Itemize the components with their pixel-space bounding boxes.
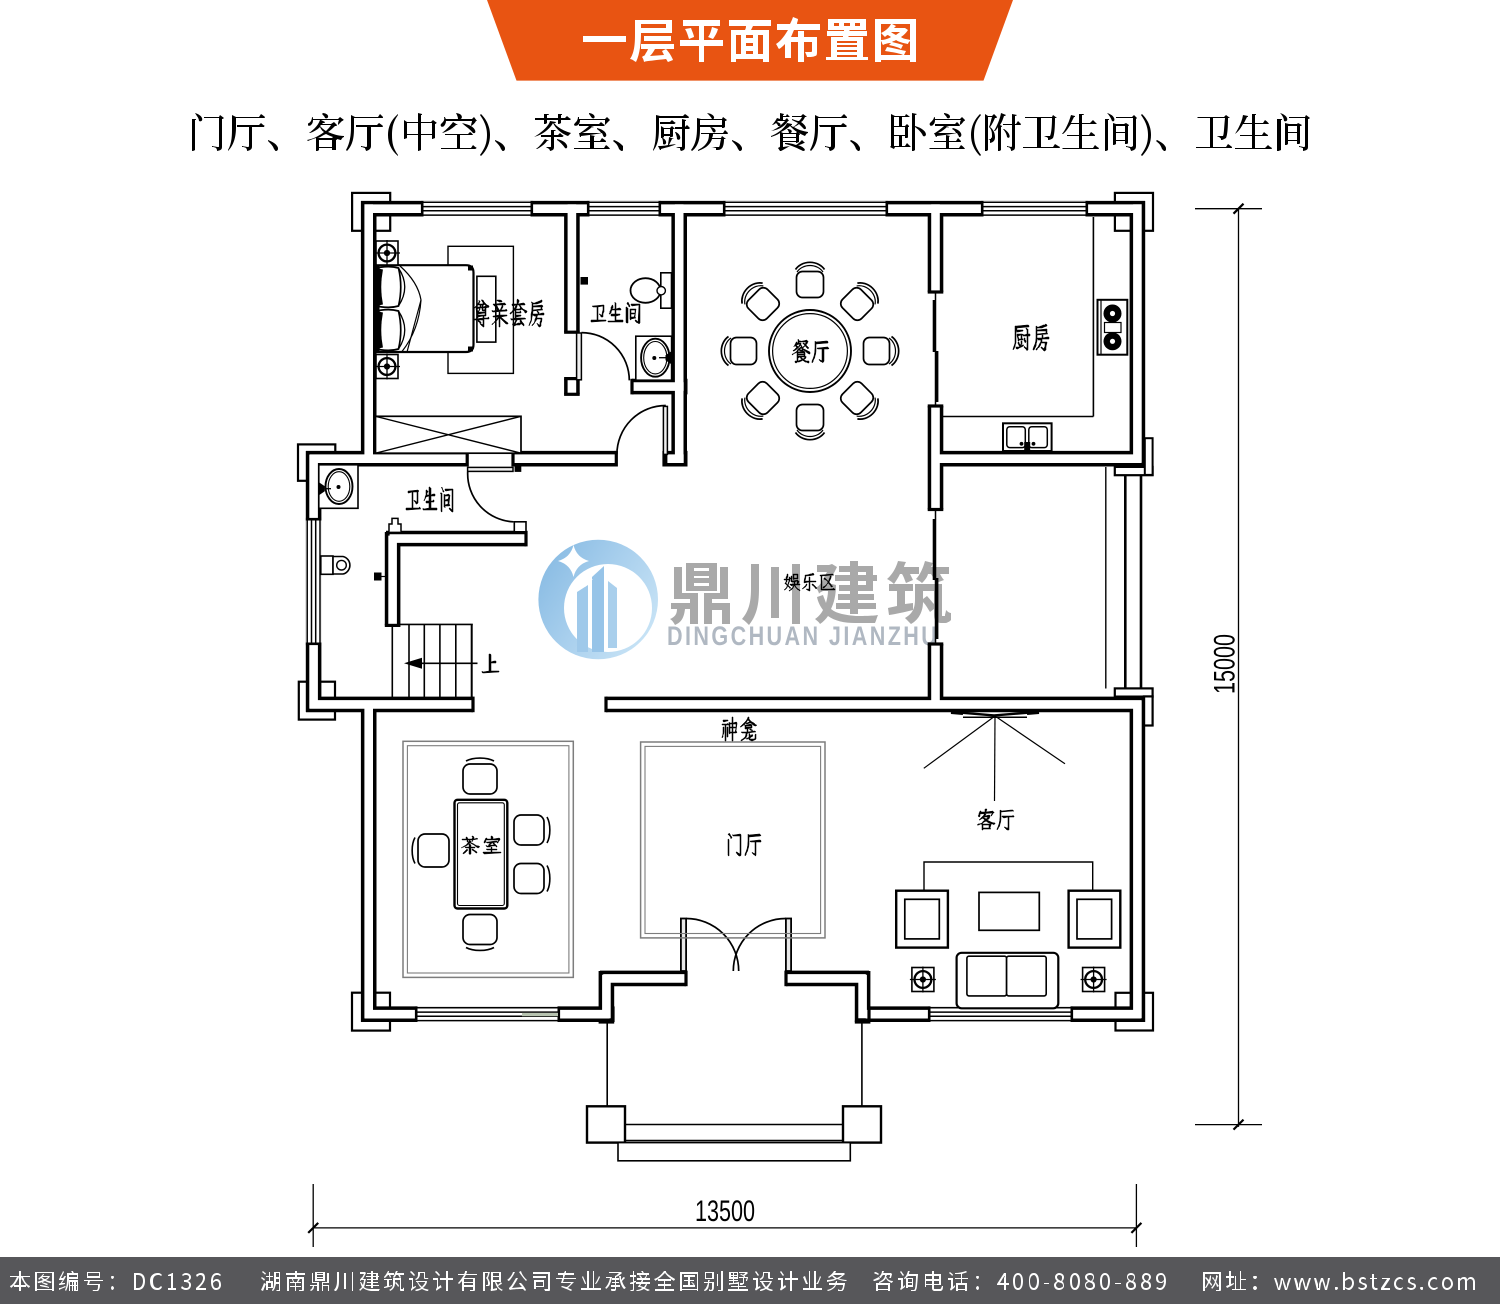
svg-text:DINGCHUAN JIANZHU: DINGCHUAN JIANZHU	[667, 622, 939, 652]
svg-text:15000: 15000	[1207, 634, 1241, 694]
svg-text:13500: 13500	[695, 1193, 755, 1227]
